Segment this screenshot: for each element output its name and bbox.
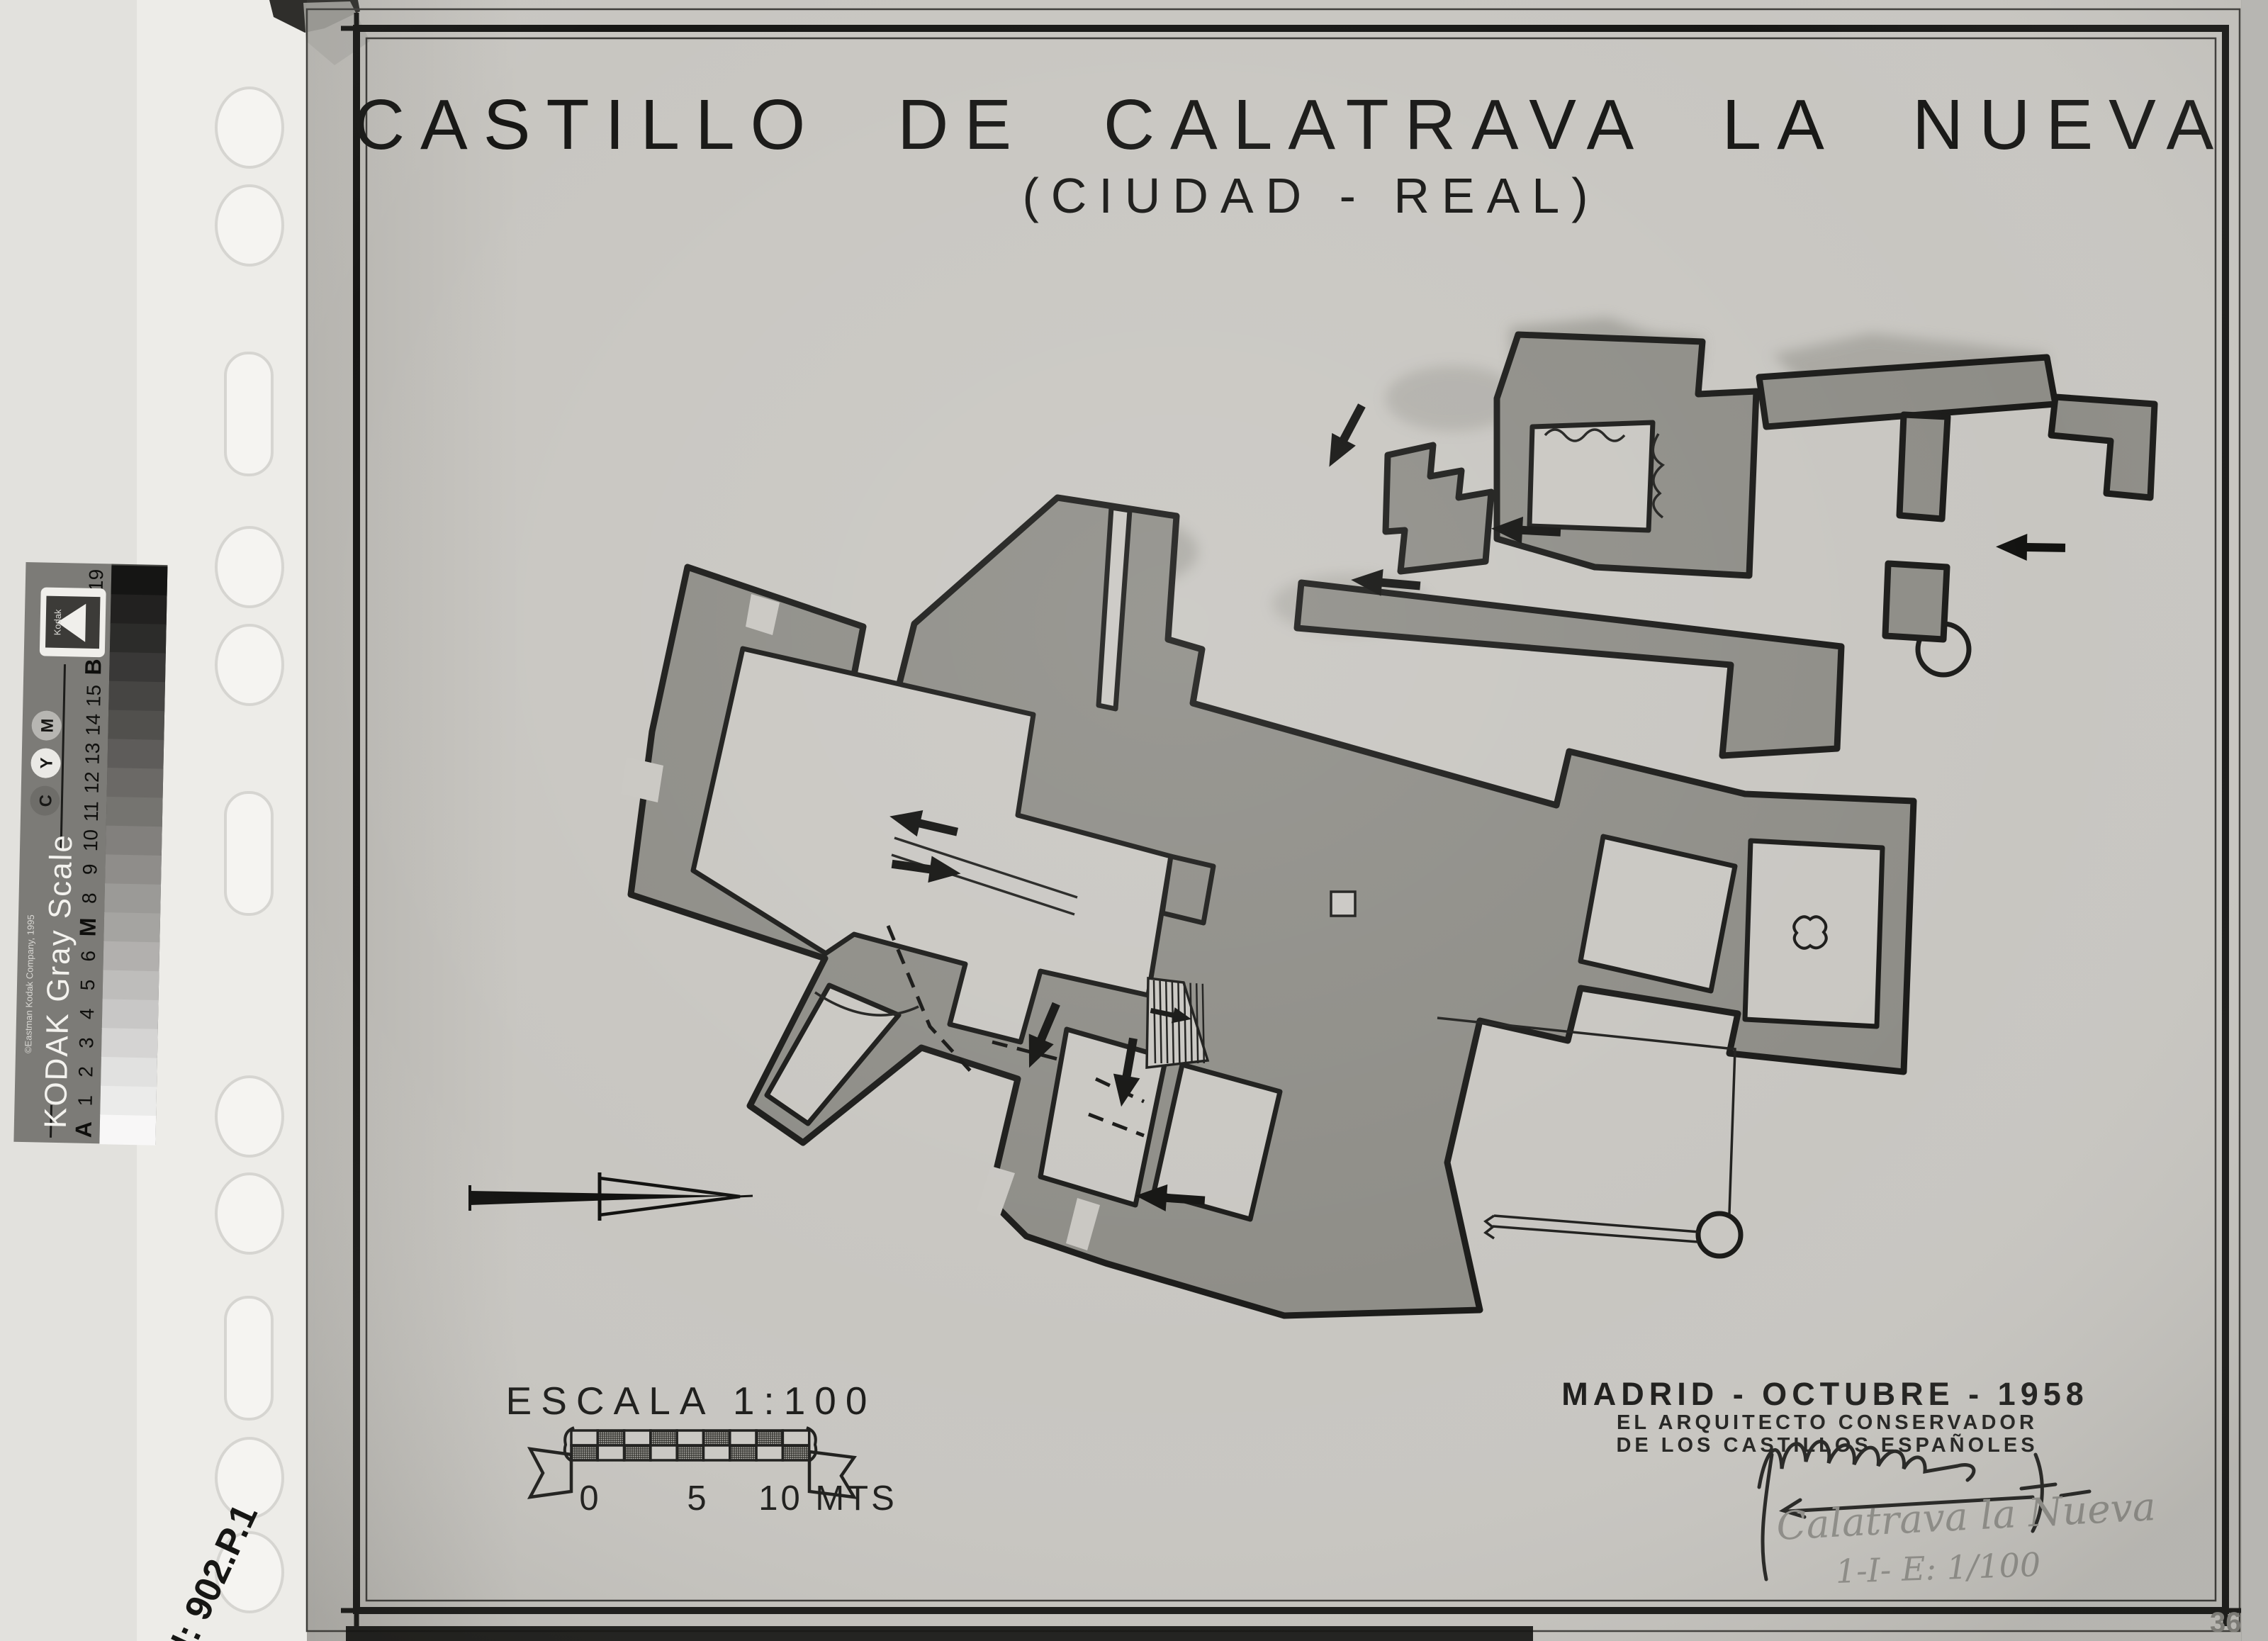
gray-patch-4 bbox=[102, 999, 159, 1029]
scale-checker-cell bbox=[756, 1430, 782, 1445]
scan-right-edge bbox=[2241, 0, 2268, 1641]
scale-tick-10: 10 MTS bbox=[758, 1479, 897, 1518]
paper-left-shadow bbox=[307, 0, 520, 1641]
punch-hole bbox=[216, 1077, 283, 1156]
doorway-square-detail bbox=[1331, 892, 1355, 916]
ne-tower-block bbox=[1885, 564, 1947, 639]
credits-place-date: MADRID - OCTUBRE - 1958 bbox=[1561, 1376, 2089, 1412]
gray-patch-label-6: 6 bbox=[77, 951, 99, 962]
punch-hole bbox=[216, 186, 283, 265]
punch-slot bbox=[225, 1297, 272, 1419]
gray-patch-label-14: 14 bbox=[82, 713, 104, 736]
kodak-gray-scale-strip: 191817B15141312111098M654321A Kodak MYC … bbox=[13, 562, 167, 1146]
gray-patch-2 bbox=[101, 1057, 157, 1087]
scale-checker-cell bbox=[624, 1430, 651, 1445]
scale-label: ESCALA 1:100 bbox=[506, 1379, 877, 1423]
scale-checker-cell bbox=[651, 1430, 677, 1445]
gray-patch-label-4: 4 bbox=[76, 1008, 98, 1019]
bottom-scan-band bbox=[346, 1626, 1533, 1641]
scale-checker-cell bbox=[704, 1445, 730, 1460]
scale-checker-cell bbox=[782, 1445, 809, 1460]
gray-patch-6 bbox=[103, 941, 159, 972]
scale-checker-cell bbox=[730, 1430, 756, 1445]
gray-patch-label-5: 5 bbox=[77, 979, 99, 990]
gray-patch-15 bbox=[108, 681, 165, 712]
gray-patch-label-B: B bbox=[80, 659, 106, 676]
scale-checker-cell bbox=[677, 1430, 703, 1445]
kodak-logo-word: Kodak bbox=[52, 609, 63, 636]
scale-checker-cell bbox=[677, 1445, 703, 1460]
gray-patch-label-3: 3 bbox=[75, 1037, 97, 1048]
ne-courtyard bbox=[1529, 422, 1653, 530]
kodak-logo: Kodak bbox=[40, 587, 106, 657]
gray-patch-label-15: 15 bbox=[82, 685, 105, 707]
gray-patch-10 bbox=[106, 826, 162, 856]
gray-patch-11 bbox=[106, 797, 163, 827]
hall-room-west bbox=[1581, 836, 1735, 991]
scale-tick-0: 0 bbox=[579, 1479, 601, 1518]
gray-patch-label-12: 12 bbox=[81, 771, 103, 794]
gray-patch-label-13: 13 bbox=[82, 742, 104, 765]
credits-architect-line1: EL ARQUITECTO CONSERVADOR bbox=[1617, 1411, 2038, 1434]
gray-patch-9 bbox=[105, 854, 162, 885]
cym-ink-circles: MYC bbox=[30, 710, 62, 816]
gray-patch-label-9: 9 bbox=[79, 863, 101, 875]
punch-hole bbox=[216, 625, 283, 705]
ink-circle-letter-M: M bbox=[38, 718, 57, 733]
gray-patch-5 bbox=[103, 970, 159, 1001]
scan-canvas: 191817B15141312111098M654321A Kodak MYC … bbox=[0, 0, 2268, 1641]
gray-patch-1 bbox=[100, 1086, 157, 1116]
gray-patch-label-10: 10 bbox=[79, 829, 102, 852]
scale-checker-cell bbox=[651, 1445, 677, 1460]
scanned-archival-sheet: { "plan": { "title": "CASTILLO DE CALATR… bbox=[0, 0, 2268, 1641]
gray-scale-brand: KODAK Gray Scale bbox=[38, 834, 79, 1129]
gray-patch-8 bbox=[104, 883, 161, 914]
scale-checker-cell bbox=[782, 1430, 809, 1445]
scale-checker-cell bbox=[704, 1430, 730, 1445]
scale-checker-cell bbox=[756, 1445, 782, 1460]
gray-patch-label-11: 11 bbox=[80, 801, 103, 822]
scale-tick-5: 5 bbox=[687, 1479, 709, 1518]
plan-title: CASTILLO DE CALATRAVA LA NUEVA bbox=[354, 85, 2229, 164]
ne-east-wing bbox=[1899, 415, 1948, 519]
punch-slot bbox=[225, 793, 272, 914]
gray-patch-A bbox=[99, 1115, 156, 1146]
scale-checker-bar bbox=[571, 1430, 809, 1460]
gray-patch-3 bbox=[101, 1028, 158, 1058]
scale-checker-cell bbox=[730, 1445, 756, 1460]
gray-patch-label-19: 19 bbox=[85, 569, 108, 592]
punch-slot bbox=[225, 353, 272, 475]
sheet-number: 36 bbox=[2210, 1607, 2242, 1638]
gray-patch-17 bbox=[110, 623, 167, 654]
scale-checker-cell bbox=[571, 1430, 597, 1445]
gray-patch-label-M: M bbox=[74, 917, 101, 936]
ink-circle-letter-Y: Y bbox=[37, 757, 56, 769]
pencil-note-ref: 1-I- E: 1/100 bbox=[1835, 1545, 2041, 1591]
gray-patch-label-2: 2 bbox=[74, 1066, 96, 1077]
gray-patch-19 bbox=[111, 565, 168, 595]
gray-patch-label-A: A bbox=[71, 1121, 96, 1138]
gray-patch-label-1: 1 bbox=[74, 1095, 96, 1107]
gray-patch-label-8: 8 bbox=[78, 892, 100, 904]
gray-patch-B bbox=[109, 652, 166, 683]
hall-room-east bbox=[1745, 841, 1882, 1026]
punch-hole bbox=[216, 527, 283, 607]
gray-patch-13 bbox=[107, 739, 164, 769]
scale-checker-cell bbox=[597, 1445, 624, 1460]
gray-patch-M bbox=[103, 912, 160, 943]
scale-checker-cell bbox=[571, 1445, 597, 1460]
ink-circle-letter-C: C bbox=[36, 795, 55, 807]
plan-subtitle: (CIUDAD - REAL) bbox=[1022, 168, 1600, 223]
bailey-pillar-stub bbox=[1162, 856, 1213, 923]
punch-hole bbox=[216, 88, 283, 167]
scale-checker-cell bbox=[597, 1430, 624, 1445]
gray-patch-18 bbox=[111, 594, 167, 625]
gray-patch-12 bbox=[107, 768, 164, 798]
gray-patch-14 bbox=[108, 710, 164, 740]
se-round-tower bbox=[1698, 1214, 1741, 1256]
punch-hole bbox=[216, 1174, 283, 1253]
scale-checker-cell bbox=[624, 1445, 651, 1460]
